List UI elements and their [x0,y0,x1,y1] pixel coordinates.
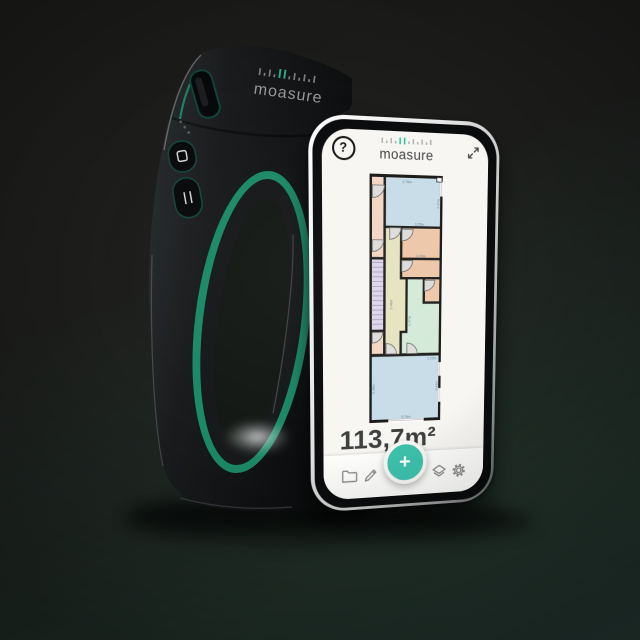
handle-glow [223,420,291,454]
phone-screen: ? moasure [321,127,488,500]
dim-label: 4.79m [402,179,412,184]
dim-label: 4.47m [436,198,440,209]
dim-label: 1.23m [427,355,437,360]
folder-icon [341,469,358,484]
pencil-icon [362,467,378,484]
room-stairwell [370,258,384,331]
expand-button[interactable] [467,146,478,159]
dim-label: 1.47m [407,315,411,325]
gear-icon [450,461,467,479]
phone-bezel: ? moasure [312,117,497,509]
dim-label: 5.79m [401,414,411,419]
expand-arrows-icon [467,146,478,159]
app-logo: moasure [321,132,488,165]
edit-button[interactable] [361,465,380,485]
product-scene: moasure ? [0,0,640,640]
app-brand-text: moasure [379,145,433,163]
dim-label: 3.40m [389,299,393,309]
app-header: ? moasure [321,127,488,171]
dim-label: 4.43m [434,380,438,390]
dim-label: 3.23m [415,222,425,227]
room-bedroom-top [385,175,442,227]
floorplan-canvas[interactable]: 4.79m 4.47m 3.23m 3.23m 3.40m 1.47m 1.23… [369,173,442,423]
layers-icon [431,463,447,479]
folder-button[interactable] [340,466,359,486]
room-living [370,354,440,422]
dim-label: 5.38m [371,383,375,393]
phone: ? moasure [308,113,500,513]
dim-label: 3.23m [416,253,426,258]
plus-icon: + [399,452,411,472]
settings-button[interactable] [449,460,467,480]
floorplan-viewport: 4.79m 4.47m 3.23m 3.23m 3.40m 1.47m 1.23… [321,171,487,424]
phone-frame: ? moasure [308,113,500,513]
layers-button[interactable] [429,461,448,481]
